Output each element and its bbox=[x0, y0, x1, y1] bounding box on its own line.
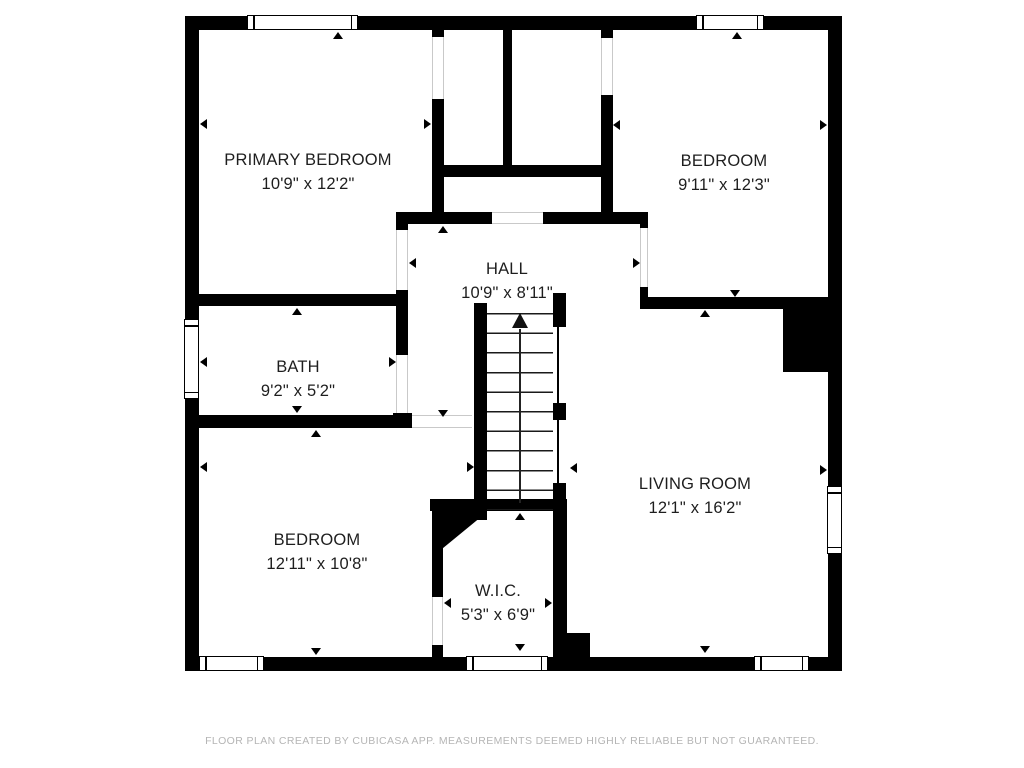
measurement-tick-icon bbox=[438, 410, 448, 417]
measurement-tick-icon bbox=[613, 120, 620, 130]
disclaimer-text: FLOOR PLAN CREATED BY CUBICASA APP. MEAS… bbox=[0, 735, 1024, 747]
wall-closet-middle bbox=[503, 30, 512, 175]
measurement-tick-icon bbox=[333, 32, 343, 39]
room-label-bedroom-top: BEDROOM 9'11" x 12'3" bbox=[678, 149, 770, 197]
measurement-tick-icon bbox=[467, 462, 474, 472]
window-wic bbox=[466, 656, 548, 671]
room-size: 9'2" x 5'2" bbox=[261, 379, 335, 403]
window-bath bbox=[184, 319, 199, 399]
measurement-tick-icon bbox=[570, 463, 577, 473]
wall-stairs-right-top bbox=[553, 293, 566, 327]
room-size: 12'11" x 10'8" bbox=[266, 552, 367, 576]
room-size: 9'11" x 12'3" bbox=[678, 173, 770, 197]
measurement-tick-icon bbox=[700, 646, 710, 653]
stairs-up-arrow-icon bbox=[519, 329, 521, 503]
wall-outer-right bbox=[828, 16, 842, 671]
room-name: HALL bbox=[461, 257, 553, 281]
wall-closet-left bbox=[432, 99, 444, 224]
wall-stairs-left bbox=[474, 303, 487, 520]
window-primary-bedroom bbox=[247, 15, 358, 30]
stairs-up-arrowhead-icon bbox=[512, 313, 528, 328]
wall-closet-bottom bbox=[432, 165, 613, 177]
chimney-block bbox=[783, 303, 828, 372]
wall-bedroom-bottom-top bbox=[185, 415, 395, 428]
room-label-bedroom-bottom: BEDROOM 12'11" x 10'8" bbox=[266, 528, 367, 576]
wall-bath-top bbox=[185, 294, 407, 306]
door-primary-closet bbox=[432, 37, 444, 99]
window-living-room-right bbox=[827, 486, 842, 554]
room-label-bath: BATH 9'2" x 5'2" bbox=[261, 355, 335, 403]
room-name: BATH bbox=[261, 355, 335, 379]
room-label-living-room: LIVING ROOM 12'1" x 16'2" bbox=[639, 472, 751, 520]
measurement-tick-icon bbox=[732, 32, 742, 39]
room-name: PRIMARY BEDROOM bbox=[224, 148, 391, 172]
measurement-tick-icon bbox=[200, 357, 207, 367]
measurement-tick-icon bbox=[545, 598, 552, 608]
window-living-room-bottom bbox=[754, 656, 809, 671]
measurement-tick-icon bbox=[515, 513, 525, 520]
measurement-tick-icon bbox=[292, 406, 302, 413]
window-bedroom-bottom bbox=[199, 656, 264, 671]
floorplan-canvas: PRIMARY BEDROOM 10'9" x 12'2" BEDROOM 9'… bbox=[0, 0, 1024, 768]
room-name: LIVING ROOM bbox=[639, 472, 751, 496]
wall-wic-left bbox=[432, 545, 443, 597]
measurement-tick-icon bbox=[311, 430, 321, 437]
stairs-railing-lower bbox=[557, 420, 559, 483]
wall-hall-top-right bbox=[543, 212, 648, 224]
wall-closet-right bbox=[601, 95, 613, 224]
measurement-tick-icon bbox=[515, 644, 525, 651]
wall-hall-right-nub bbox=[640, 212, 648, 228]
door-wic bbox=[432, 597, 443, 645]
wall-stairs-right-mid bbox=[553, 403, 566, 420]
measurement-tick-icon bbox=[200, 119, 207, 129]
measurement-tick-icon bbox=[820, 120, 827, 130]
measurement-tick-icon bbox=[633, 258, 640, 268]
room-size: 10'9" x 8'11" bbox=[461, 281, 553, 305]
measurement-tick-icon bbox=[311, 648, 321, 655]
room-name: BEDROOM bbox=[678, 149, 770, 173]
window-bedroom-top bbox=[696, 15, 764, 30]
stairs-railing-upper bbox=[557, 327, 559, 403]
door-bath bbox=[396, 355, 408, 413]
wall-bedroom-door-post bbox=[393, 413, 412, 428]
room-size: 12'1" x 16'2" bbox=[639, 496, 751, 520]
wall-closet-right-stub bbox=[601, 30, 613, 38]
room-label-wic: W.I.C. 5'3" x 6'9" bbox=[461, 579, 535, 627]
measurement-tick-icon bbox=[200, 462, 207, 472]
room-name: BEDROOM bbox=[266, 528, 367, 552]
room-name: W.I.C. bbox=[461, 579, 535, 603]
measurement-tick-icon bbox=[820, 465, 827, 475]
measurement-tick-icon bbox=[292, 308, 302, 315]
wall-wic-diagonal-corner bbox=[432, 505, 487, 549]
wall-wic-left-post bbox=[432, 645, 443, 671]
measurement-tick-icon bbox=[730, 290, 740, 297]
wall-closet-left-stub bbox=[432, 30, 444, 37]
measurement-tick-icon bbox=[424, 119, 431, 129]
measurement-tick-icon bbox=[409, 258, 416, 268]
living-room-corner-block bbox=[553, 633, 590, 658]
measurement-tick-icon bbox=[444, 598, 451, 608]
room-size: 5'3" x 6'9" bbox=[461, 603, 535, 627]
measurement-tick-icon bbox=[389, 357, 396, 367]
room-label-hall: HALL 10'9" x 8'11" bbox=[461, 257, 553, 305]
door-bedroom-closet bbox=[601, 38, 613, 95]
door-hall-closet bbox=[492, 212, 543, 224]
room-label-primary-bedroom: PRIMARY BEDROOM 10'9" x 12'2" bbox=[224, 148, 391, 196]
measurement-tick-icon bbox=[438, 226, 448, 233]
wall-hall-top-left bbox=[396, 212, 492, 224]
door-primary-bedroom bbox=[396, 230, 408, 290]
measurement-tick-icon bbox=[700, 310, 710, 317]
door-bedroom-top bbox=[640, 228, 648, 287]
room-size: 10'9" x 12'2" bbox=[224, 172, 391, 196]
